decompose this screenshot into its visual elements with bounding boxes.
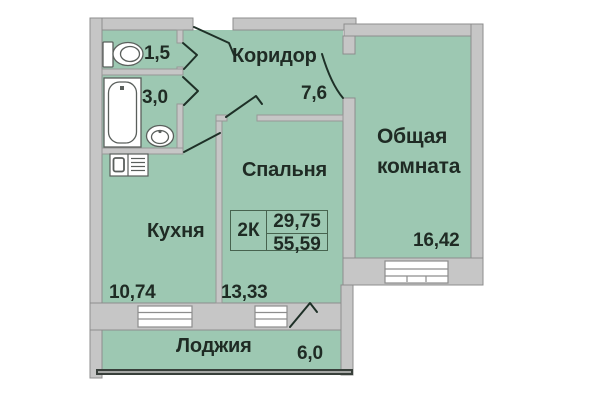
kitchen-label: Кухня xyxy=(147,221,204,241)
kitchen-area: 10,74 xyxy=(109,283,156,302)
unit-living-area: 29,75 xyxy=(267,211,327,234)
unit-areas: 29,75 55,59 xyxy=(267,211,327,250)
bathroom-area: 3,0 xyxy=(142,88,168,107)
toilet-icon xyxy=(103,42,143,67)
unit-type: 2К xyxy=(231,211,267,250)
bedroom-window xyxy=(255,306,287,327)
sink-icon xyxy=(147,126,174,147)
loggia-glazing xyxy=(96,369,353,375)
floor-plan: Коридор 7,6 1,5 3,0 Спальня 13,33 Кухня … xyxy=(0,0,600,400)
wc-area: 1,5 xyxy=(144,44,170,63)
loggia-label: Лоджия xyxy=(176,336,252,356)
unit-info-badge: 2К 29,75 55,59 xyxy=(230,210,328,251)
loggia-area: 6,0 xyxy=(297,344,323,363)
living-room-label: Общая комната xyxy=(377,122,477,182)
corridor-label: Коридор xyxy=(232,46,317,66)
kitchen-window xyxy=(138,306,192,327)
unit-total-area: 55,59 xyxy=(267,234,327,256)
corridor-area: 7,6 xyxy=(301,84,327,103)
kitchen-stove-icon xyxy=(110,154,148,176)
bedroom-area: 13,33 xyxy=(221,283,268,302)
bedroom-label: Спальня xyxy=(242,160,327,180)
living-room-door-gap xyxy=(343,54,355,98)
living-room-area: 16,42 xyxy=(413,231,460,250)
bathtub-icon xyxy=(104,78,141,147)
living-room-window xyxy=(385,261,448,283)
